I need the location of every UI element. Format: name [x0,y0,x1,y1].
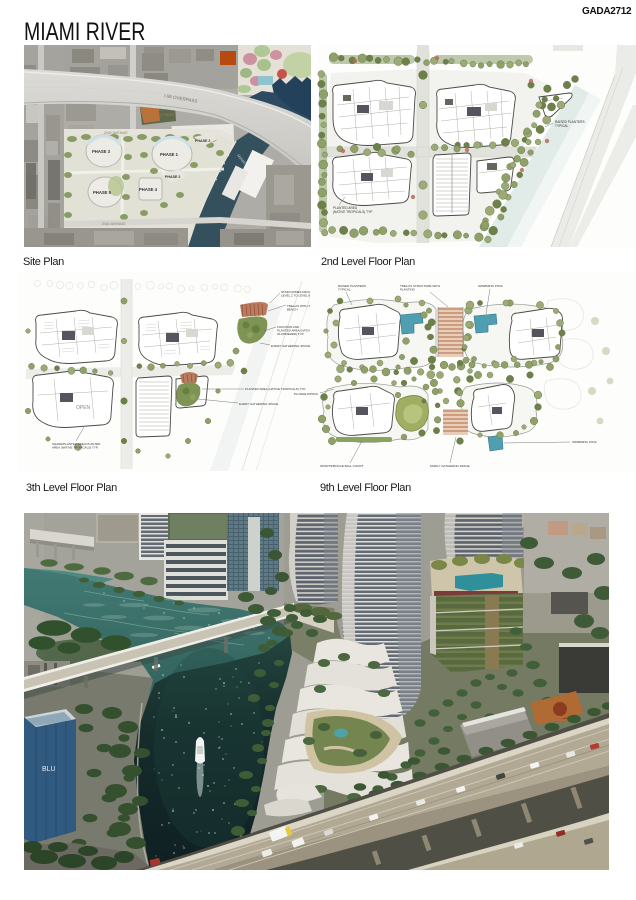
svg-text:TYPICAL: TYPICAL [338,288,351,292]
svg-text:PLANTED AREA (NATIVE TROPICALS: PLANTED AREA (NATIVE TROPICALS) TYP. [245,387,306,391]
svg-text:PLANTING: PLANTING [400,288,416,292]
svg-text:AREA (NATIVE TROPICALS) TYP.: AREA (NATIVE TROPICALS) TYP. [52,446,98,450]
svg-text:PHASE 2: PHASE 2 [165,175,180,179]
svg-text:BLU: BLU [42,766,56,773]
svg-text:PHASE 5: PHASE 5 [93,190,112,195]
svg-text:EVENT GATHERING SPACE: EVENT GATHERING SPACE [271,344,310,348]
svg-text:IN-ORDERED) TYP.: IN-ORDERED) TYP. [277,332,304,336]
svg-text:EVENT GATHERING SPACE: EVENT GATHERING SPACE [239,402,278,406]
svg-text:PHASE 1: PHASE 1 [160,152,179,157]
svg-text:(NATIVE TROPICALS) TYP.: (NATIVE TROPICALS) TYP. [333,210,373,214]
svg-text:SWIMMING POOL: SWIMMING POOL [478,284,503,288]
svg-text:PHASE 3: PHASE 3 [92,149,111,154]
svg-text:BENCH: BENCH [287,308,298,312]
svg-text:FAMILY GATHERING SPACE: FAMILY GATHERING SPACE [430,464,470,468]
svg-text:OPEN: OPEN [76,405,91,411]
svg-text:SOFTBALL PARK: SOFTBALL PARK [142,112,174,117]
svg-text:2ND AVENUE: 2ND AVENUE [102,222,126,226]
svg-text:TYPICAL: TYPICAL [555,124,569,128]
svg-text:LEVEL 2 TO LEVEL 8: LEVEL 2 TO LEVEL 8 [281,294,311,298]
svg-text:SWIMMING POOL: SWIMMING POOL [572,440,597,444]
svg-text:POOL: POOL [310,392,319,396]
svg-text:PHASE 4: PHASE 4 [139,187,158,192]
svg-text:PHASE 2: PHASE 2 [195,139,210,143]
svg-text:SPORTS/BOCCE BALL COURT: SPORTS/BOCCE BALL COURT [320,464,363,468]
